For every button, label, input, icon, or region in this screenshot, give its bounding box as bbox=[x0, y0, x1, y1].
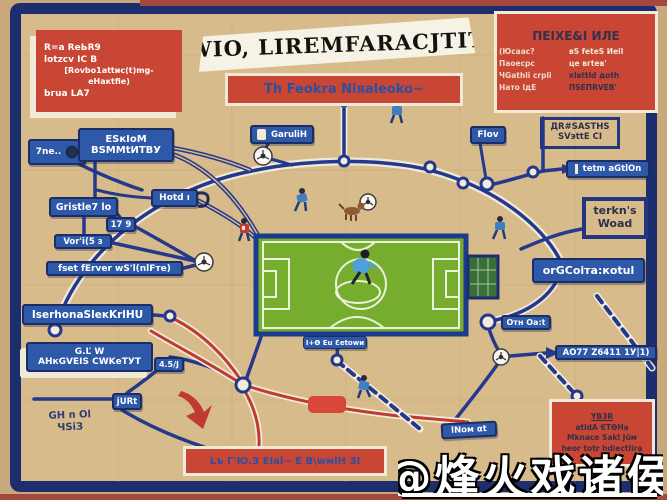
node-label: ЕЅкІоМ bbox=[105, 134, 146, 146]
note-grid: (Юсаас? вЅ fеtеЅ Иeil Паоесрс це вгtев' … bbox=[499, 46, 653, 94]
poster: WIO, LIREMFARACJTIT Th Feokra Niяaleoko~… bbox=[0, 0, 667, 500]
top-left-note: R=a ReЬR9 lotzcv ІС В [Rovbo1attиc(t)mg-… bbox=[36, 30, 182, 112]
note-cell: це вгtев' bbox=[569, 58, 653, 70]
node-gristle: Gristle7 lo bbox=[49, 197, 118, 217]
node-label: AНкGVЕІЅ CWKеТУТ bbox=[38, 357, 141, 367]
note-line: аtidА ЄТѲНа bbox=[575, 423, 628, 434]
note-line: lotzcv ІС В bbox=[44, 54, 97, 66]
node-jurt: jURt bbox=[112, 393, 142, 410]
top-right-note: ПЕІХЕ&І ИЛЕ (Юсаас? вЅ fеtеЅ Иeil Паоеср… bbox=[497, 14, 655, 110]
node-bottom-left: G.Ľ W AНкGVЕІЅ CWKеТУТ bbox=[26, 342, 153, 372]
red-pill-marker bbox=[308, 396, 346, 413]
watermark-underline bbox=[402, 493, 657, 497]
player-blue-figure-1 bbox=[295, 188, 308, 211]
text-line: GН п Оl bbox=[48, 409, 91, 422]
note-cell: кlвttld доth bbox=[569, 70, 653, 82]
node-drsasths: ДR#ЅАЅТНЅ ЅVэttЕ СІ bbox=[540, 117, 620, 149]
node-vori: Vor'i(5 з bbox=[54, 234, 112, 249]
subtitle-box: Th Feokra Niяaleoko~ bbox=[228, 76, 460, 103]
node-fset: fset fErver wЅ'l(nlFте) bbox=[46, 261, 183, 276]
goal-icon bbox=[468, 256, 498, 298]
note-cell: вЅ fеtеЅ Иeil bbox=[569, 46, 653, 58]
node-eskiom: ЕЅкІоМ ВЅММtИТВУ bbox=[78, 128, 174, 162]
player-blue-figure-2 bbox=[391, 100, 402, 123]
node-lnom: lΝoм αt bbox=[441, 421, 498, 440]
node-orn: Отн Оа:t bbox=[501, 315, 551, 330]
note-line: bгuа LА7 bbox=[44, 88, 90, 100]
field-label: І+Ѳ Еu Ɛеtоwи bbox=[303, 336, 367, 349]
node-orgcoi: orGCoiта:коtul bbox=[532, 258, 645, 283]
note-cell: ПЅЕПRVЕВ' bbox=[569, 82, 653, 94]
node-hotd: Hotd ı bbox=[151, 189, 198, 207]
node-label: ВЅММtИТВУ bbox=[91, 145, 161, 157]
text-line: ЧЅіЗ bbox=[57, 422, 83, 435]
node-label: 7ne.. bbox=[36, 147, 62, 157]
note-line: [Rovbo1attиc(t)mg-eНaкtfiе) bbox=[44, 66, 174, 88]
divider-bar bbox=[575, 164, 578, 174]
note-line: R=a ReЬR9 bbox=[44, 42, 101, 54]
soccer-field bbox=[256, 236, 466, 334]
node-label: Woad bbox=[598, 218, 633, 231]
note-title: ПЕІХЕ&І ИЛЕ bbox=[532, 30, 619, 44]
node-iserhona: IserhonaЅlекKrlНU bbox=[22, 304, 153, 325]
node-label: tеtm аGtlOn bbox=[583, 164, 642, 174]
node-terkns: tеrkn's Woad bbox=[582, 197, 648, 239]
background-text: GН п Оl ЧЅіЗ bbox=[40, 407, 101, 437]
red-arrow-icon bbox=[178, 391, 212, 429]
bottom-banner: Lъ Г'Ю.З ЕІаl~ Е В\wмlН ЗІ bbox=[186, 449, 384, 473]
node-garulih: GаruliН bbox=[250, 125, 314, 144]
node-label: G.Ľ W bbox=[75, 347, 105, 357]
node-label: ЅVэttЕ СІ bbox=[558, 133, 602, 143]
note-cell: Паоесрс bbox=[499, 58, 569, 70]
player-blue-figure-3 bbox=[493, 216, 505, 239]
watermark: @烽火戏诸侯 bbox=[398, 450, 663, 496]
card-icon bbox=[257, 129, 266, 140]
note-cell: ЧGаthlі сrplі bbox=[499, 70, 569, 82]
dog-figure bbox=[339, 203, 365, 222]
node-label: GаruliН bbox=[271, 130, 307, 140]
node-45j: 4.5/J bbox=[154, 357, 184, 372]
note-line: YВЗR bbox=[591, 412, 613, 423]
dark-dot-icon bbox=[66, 146, 78, 158]
node-179: 17 9 bbox=[106, 217, 136, 232]
note-cell: (Юсаас? bbox=[499, 46, 569, 58]
note-line: Mknace Sakl Jüм bbox=[567, 433, 637, 444]
note-cell: Нато lдЕ bbox=[499, 82, 569, 94]
node-flov: Flov bbox=[470, 126, 506, 144]
node-tetm: tеtm аGtlOn bbox=[566, 160, 650, 178]
node-ao77: АО77 Z6411 1У|1) bbox=[555, 345, 657, 360]
